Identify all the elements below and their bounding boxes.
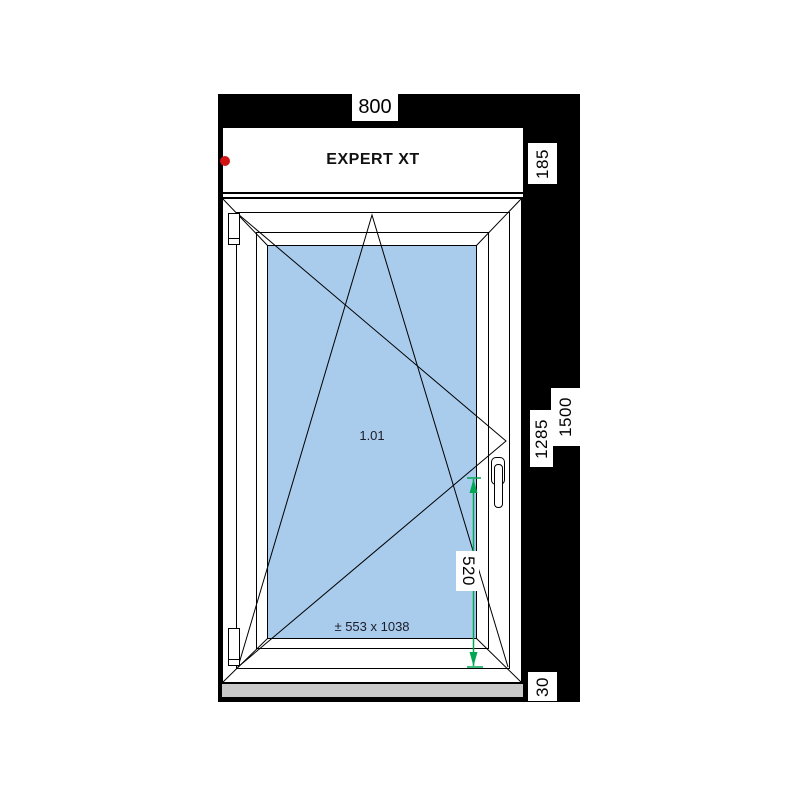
dimension-sill-height[interactable]: 30	[528, 672, 557, 701]
symbol-lines-overlay	[0, 0, 800, 800]
glass-size-label: ± 553 x 1038	[319, 619, 425, 634]
dimension-top-box-height[interactable]: 185	[528, 143, 557, 184]
dim-arrow-up	[470, 479, 478, 493]
miter-line-top-right	[476, 198, 522, 246]
dimension-window-height-value: 1285	[532, 419, 552, 459]
dimension-top-box-height-value: 185	[533, 149, 553, 179]
dimension-total-height[interactable]: 1500	[551, 388, 580, 446]
dimension-total-height-value: 1500	[556, 397, 576, 437]
position-number-label: 1.01	[340, 428, 404, 443]
hinge-bottom-split-line	[229, 659, 239, 660]
hinge-top-split-line	[229, 238, 239, 239]
dimension-window-height[interactable]: 1285	[530, 410, 553, 467]
hinge-bottom-icon	[228, 628, 240, 666]
miter-line-bottom-right	[476, 638, 522, 683]
dimension-handle-height[interactable]: 520	[456, 551, 479, 591]
window-handle-grip-icon[interactable]	[494, 464, 503, 508]
dimension-sill-height-value: 30	[532, 677, 552, 697]
red-marker-dot-icon	[220, 156, 230, 166]
window-drawing-canvas: 800 EXPERT XT 185 1500	[0, 0, 800, 800]
dim-arrow-down	[470, 652, 478, 666]
dimension-handle-height-value: 520	[458, 556, 478, 586]
hinge-top-icon	[228, 213, 240, 245]
